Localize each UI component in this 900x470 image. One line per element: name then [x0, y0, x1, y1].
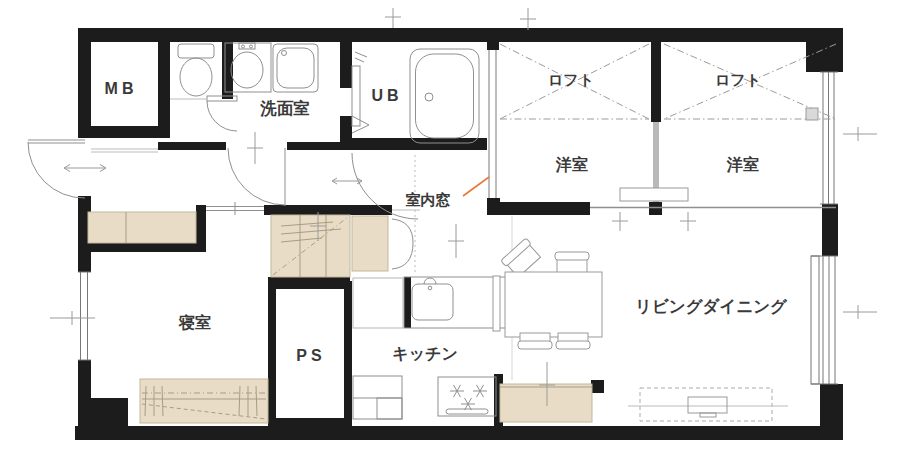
floor-plan-drawing: MB 洗面室 UB ロフト ロフト 洋室 洋室 寝室 PS キッチン リビングダ… — [0, 0, 900, 470]
bedroom-sliding-door — [206, 202, 264, 215]
interior-window-label: 室内窓 — [406, 191, 451, 208]
wall-segment — [649, 202, 662, 215]
room-label-mb: MB — [105, 80, 138, 97]
burner-icon — [450, 385, 464, 397]
wall-segment — [264, 205, 392, 215]
room-label-western-right: 洋室 — [726, 155, 759, 173]
entrance-shoe-cabinet — [88, 212, 196, 243]
entrance-door — [28, 140, 85, 198]
wall-segment — [78, 28, 91, 138]
wall-segment — [822, 204, 838, 256]
dining-bench — [493, 276, 500, 331]
wall-segment — [287, 142, 345, 150]
wall-segment — [487, 28, 499, 52]
refrigerator-space — [353, 376, 402, 419]
room-label-kitchen: キッチン — [392, 345, 458, 362]
dining-table — [505, 272, 602, 337]
dining-set — [493, 238, 602, 349]
wall-segment — [82, 243, 205, 252]
loft-ladder-mark — [806, 108, 818, 120]
washroom-door — [228, 148, 285, 206]
wall-segment — [158, 28, 170, 138]
toilet — [178, 44, 214, 96]
dining-chair — [556, 333, 590, 349]
burner-icon — [473, 385, 487, 397]
burner-icon — [461, 398, 475, 410]
wall-segment — [806, 28, 843, 72]
direction-arrows — [64, 165, 362, 185]
wall-segment — [78, 28, 843, 42]
room-label-ps: PS — [296, 347, 325, 364]
toilet-door — [207, 96, 237, 131]
closet-bifold-doors — [392, 219, 413, 269]
bath-shelf — [352, 52, 367, 126]
kitchen-open-counter — [353, 278, 403, 328]
dining-chair — [518, 333, 552, 349]
bathtub — [410, 49, 479, 143]
wall-segment — [158, 142, 226, 150]
living-window — [811, 256, 838, 384]
entrance-arrow — [64, 165, 106, 172]
room-label-living-dining: リビングダイニング — [635, 297, 788, 315]
wall-segment — [222, 28, 233, 99]
wall-segment — [340, 138, 487, 150]
wall-segment — [78, 398, 128, 428]
hall-closet — [352, 216, 388, 271]
interior-window-wall — [487, 50, 499, 198]
stove — [438, 377, 496, 416]
tv-board — [628, 388, 788, 421]
room-label-western-left: 洋室 — [555, 155, 588, 173]
wall-segment — [487, 202, 590, 215]
wall-segment — [75, 426, 843, 440]
interior-window-leader — [463, 177, 489, 196]
washing-machine — [273, 44, 318, 92]
room-label-washroom: 洗面室 — [259, 99, 310, 117]
wall-segment — [651, 42, 661, 122]
room-label-loft-left: ロフト — [548, 71, 594, 88]
room-label-bedroom: 寝室 — [178, 313, 211, 331]
wall-segment — [196, 205, 206, 252]
bedroom-wardrobe — [140, 379, 268, 423]
living-storage — [500, 384, 592, 422]
western-room-sliding-doors — [590, 188, 836, 208]
wall-segment — [591, 380, 604, 393]
wall-segment — [820, 384, 843, 440]
room-label-ub: UB — [371, 87, 402, 104]
wall-segment — [404, 277, 411, 328]
kitchen-sink-counter — [404, 277, 506, 328]
wall-segment — [78, 126, 170, 138]
room-label-loft-right: ロフト — [715, 71, 761, 88]
floor-plan: MB 洗面室 UB ロフト ロフト 洋室 洋室 寝室 PS キッチン リビングダ… — [0, 0, 900, 470]
bedroom-window — [78, 272, 91, 360]
western-room-window — [820, 72, 838, 204]
wall-segment — [340, 28, 352, 88]
